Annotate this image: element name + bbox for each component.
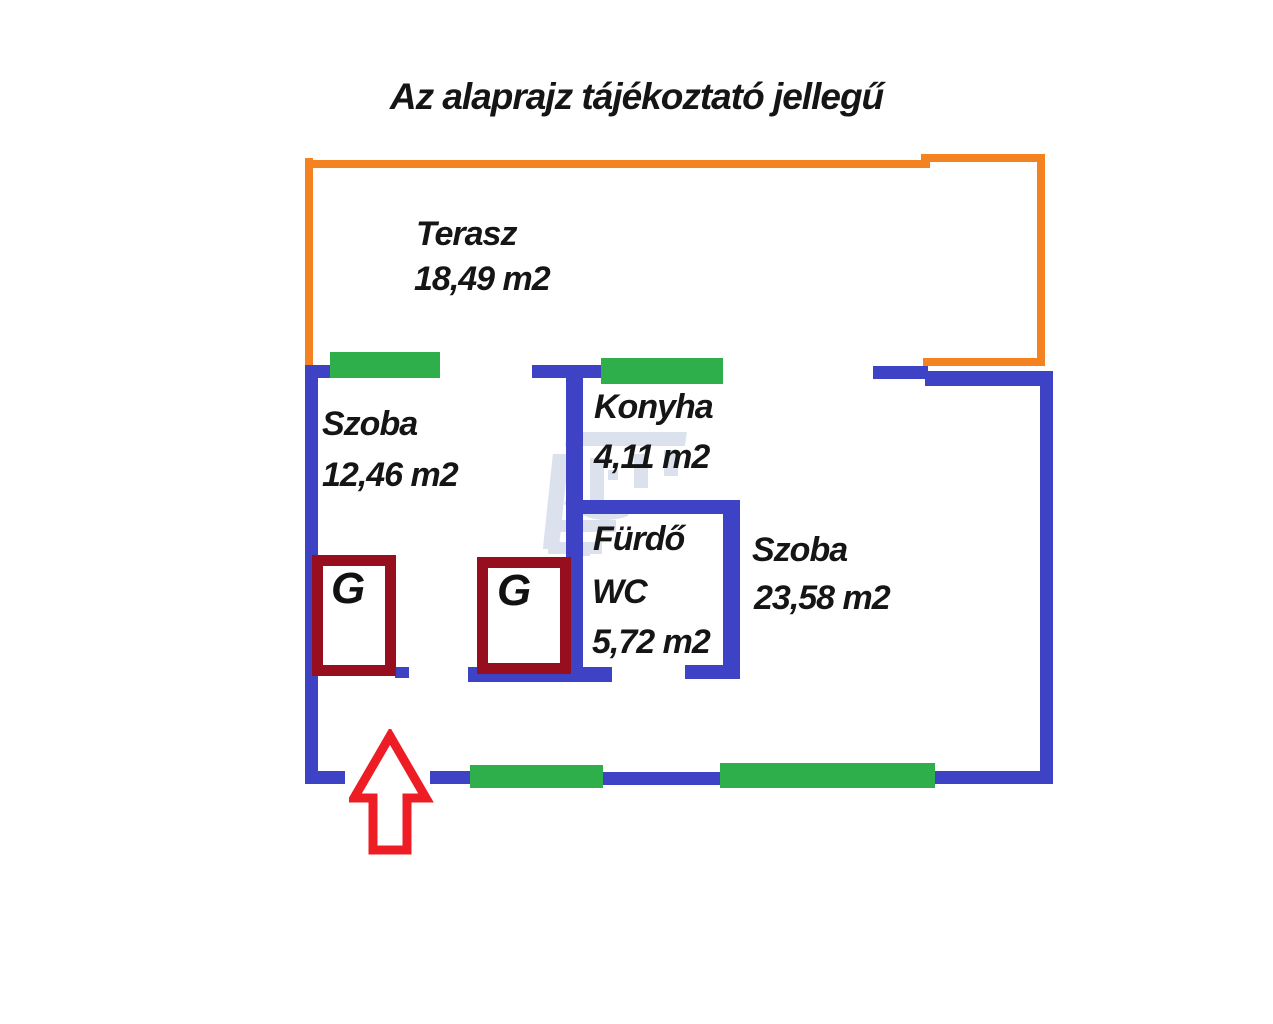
gas-box-1-label: G — [331, 567, 365, 611]
plan-disclaimer-title: Az alaprajz tájékoztató jellegű — [0, 76, 1273, 118]
room-szoba2-area: 23,58 m2 — [754, 581, 890, 615]
window-bottom-right — [720, 763, 935, 788]
terrace-wall-step-join — [921, 154, 930, 168]
terrace-wall-top-step — [921, 154, 1045, 162]
wall-top-right-b — [925, 371, 1053, 386]
wall-bottom-seg-3 — [933, 771, 1053, 784]
terrace-wall-right — [1037, 154, 1045, 366]
window-top-konyha — [601, 358, 723, 384]
wall-bottom-left-stub — [305, 771, 345, 784]
room-szoba1-name: Szoba — [322, 407, 417, 441]
terrace-wall-top — [305, 160, 928, 168]
room-furdo-name: Fürdő — [593, 522, 684, 556]
window-bottom-left — [470, 765, 603, 788]
entrance-arrow-icon — [349, 729, 435, 859]
terrace-wall-left — [305, 158, 313, 365]
bathroom-wall-top — [566, 500, 740, 514]
room-furdo-name2: WC — [592, 575, 647, 609]
floor-plan: Az alaprajz tájékoztató jellegű — [0, 0, 1273, 1024]
room-konyha-name: Konyha — [594, 390, 713, 424]
terrace-wall-bottom-right — [923, 358, 1045, 366]
room-szoba2-name: Szoba — [752, 533, 847, 567]
room-terasz-area: 18,49 m2 — [414, 262, 550, 296]
room-terasz-name: Terasz — [416, 217, 516, 251]
window-top-szoba — [330, 352, 440, 378]
wall-bottom-seg-1 — [430, 771, 472, 784]
gas-box-2-label: G — [497, 569, 531, 613]
room-szoba1-area: 12,46 m2 — [322, 458, 458, 492]
stub-right-of-gbox-1 — [395, 667, 409, 678]
bathroom-wall-right — [723, 500, 740, 678]
room-furdo-area: 5,72 m2 — [592, 625, 710, 659]
wall-top-right-a — [873, 366, 928, 379]
room-konyha-area: 4,11 m2 — [594, 440, 709, 474]
wall-right — [1040, 371, 1053, 784]
bathroom-wall-bottom-stub — [685, 665, 740, 679]
wall-bottom-seg-2 — [601, 772, 722, 785]
